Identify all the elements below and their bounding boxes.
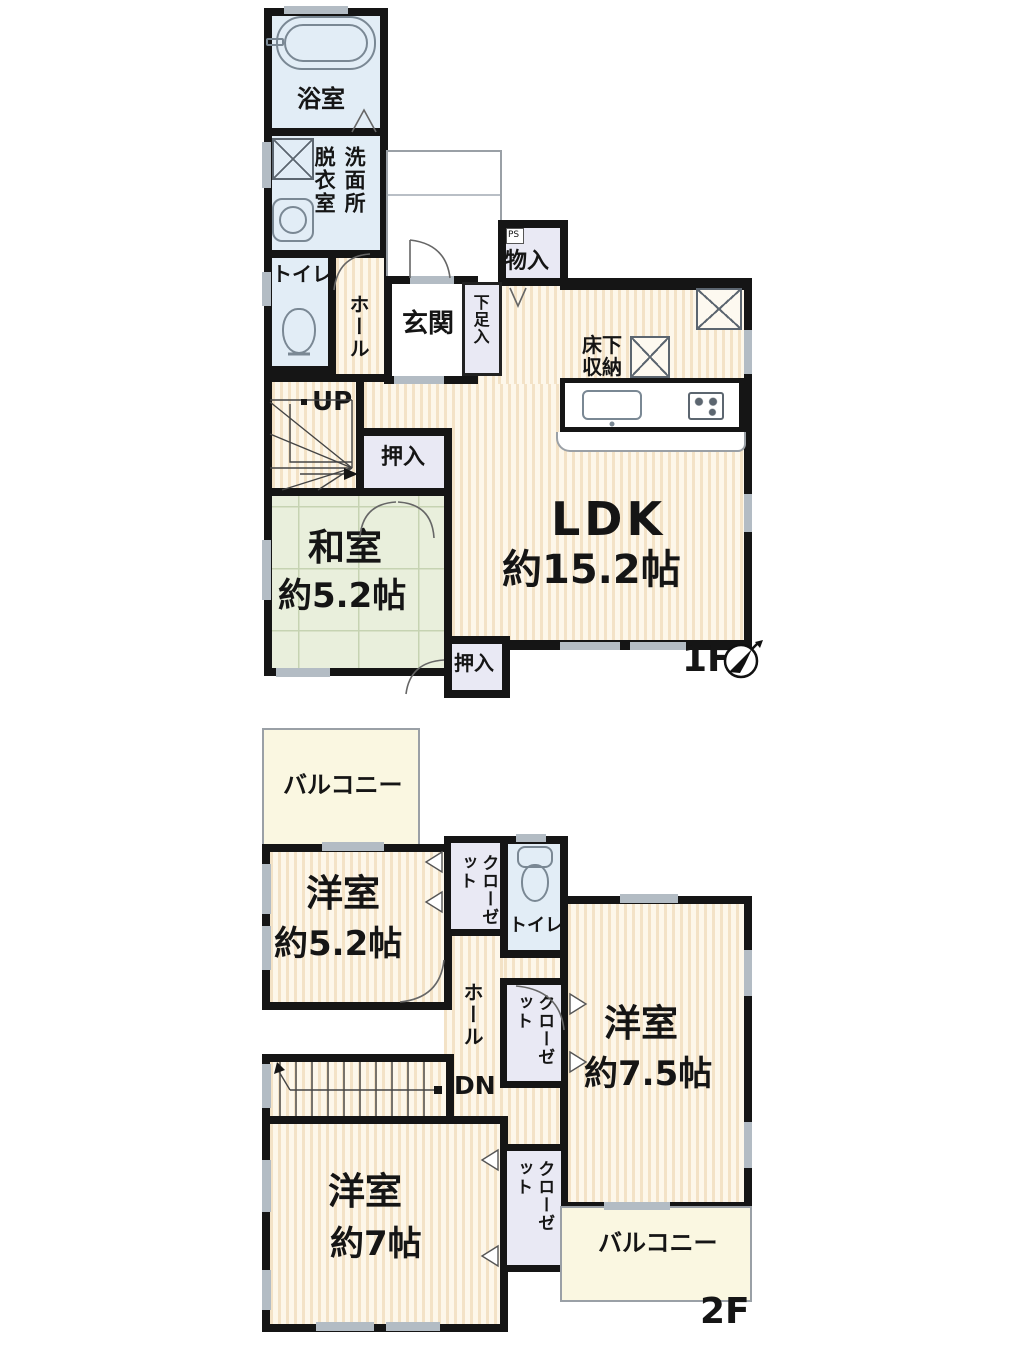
window-mark (276, 668, 330, 677)
bath-faucet-icon (266, 38, 284, 46)
window-mark (630, 642, 686, 650)
door-threshold (394, 376, 444, 384)
label-western7-size: 約7帖 (330, 1226, 422, 1263)
stove-icon (688, 392, 724, 420)
label-closet-bottom: クローゼット (511, 1160, 555, 1232)
window-mark (262, 926, 271, 970)
label-dressing: 脱衣室 (312, 146, 335, 224)
window-mark (262, 864, 271, 914)
label-toilet-2f: トイレ (509, 916, 563, 936)
window-mark (262, 272, 271, 306)
label-hall-1f: ホール (347, 294, 369, 374)
room-western-75 (560, 896, 752, 1210)
label-western75: 洋室 (604, 1004, 678, 1045)
window-mark (516, 834, 546, 842)
window-mark (262, 1064, 271, 1108)
window-mark (262, 142, 271, 188)
label-underfloor: 床下収納 (582, 334, 628, 378)
label-storage: 物入 (505, 250, 549, 274)
window-mark (744, 494, 752, 532)
washbasin-bowl (279, 206, 307, 234)
underfloor-storage-icon (630, 336, 670, 378)
window-mark (386, 1322, 440, 1331)
window-mark (322, 842, 384, 851)
label-floor-2f: 2F (700, 1292, 750, 1332)
window-mark (744, 330, 752, 374)
door-threshold (410, 276, 454, 284)
label-entrance: 玄関 (402, 310, 454, 339)
label-hall-2f: ホール (461, 982, 483, 1064)
window-mark (262, 1270, 271, 1310)
label-washroom: 洗面所 (342, 146, 365, 224)
label-bath: 浴室 (297, 86, 345, 112)
entrance-porch (386, 150, 502, 284)
label-western52-size: 約5.2帖 (274, 926, 402, 963)
toilet-bowl-icon-1f (282, 308, 316, 354)
label-balcony-bottom: バルコニー (598, 1230, 718, 1256)
window-mark (744, 1122, 752, 1168)
bathtub-inner (284, 24, 368, 62)
window-mark (262, 540, 271, 600)
window-mark (620, 894, 678, 903)
label-western7: 洋室 (328, 1172, 402, 1213)
label-western52: 洋室 (306, 874, 380, 915)
label-balcony-top: バルコニー (283, 772, 403, 798)
window-mark (316, 1322, 374, 1331)
window-mark (284, 6, 348, 14)
label-up: UP (312, 388, 352, 417)
kitchen-sink-icon (582, 390, 642, 420)
hall-2f-floor-c (500, 1080, 568, 1150)
label-oshiire-upper: 押入 (381, 446, 425, 470)
ldk-corner-storage-icon (696, 288, 742, 330)
stairs-down-2f (262, 1054, 454, 1124)
window-mark (604, 1202, 670, 1210)
toilet-bowl-icon-2f (521, 864, 549, 902)
kitchen-counter-overhang (556, 432, 746, 452)
label-ldk: LDK (551, 494, 666, 545)
label-washitsu-size: 約5.2帖 (278, 578, 406, 615)
porch-step-line (388, 194, 500, 196)
window-mark (262, 1160, 271, 1212)
label-closet-top: クローゼット (455, 854, 499, 926)
label-shoe-box: 下足入 (471, 294, 489, 360)
label-ps: PS (508, 231, 519, 241)
label-closet-mid: クローゼット (511, 994, 555, 1066)
label-ldk-size: 約15.2帖 (502, 548, 681, 592)
label-western75-size: 約7.5帖 (584, 1056, 712, 1093)
floorplan-page: { "f1": { "label": "1F", "bath": "浴室", "… (0, 0, 1010, 1346)
label-washitsu: 和室 (308, 528, 382, 569)
label-floor-1f: 1F (682, 640, 732, 680)
label-toilet-1f: トイレ (272, 263, 332, 285)
washing-machine-icon (272, 138, 314, 180)
window-mark (744, 950, 752, 996)
label-oshiire-lower: 押入 (454, 652, 494, 674)
label-dn: DN (454, 1072, 496, 1100)
window-mark (560, 642, 620, 650)
